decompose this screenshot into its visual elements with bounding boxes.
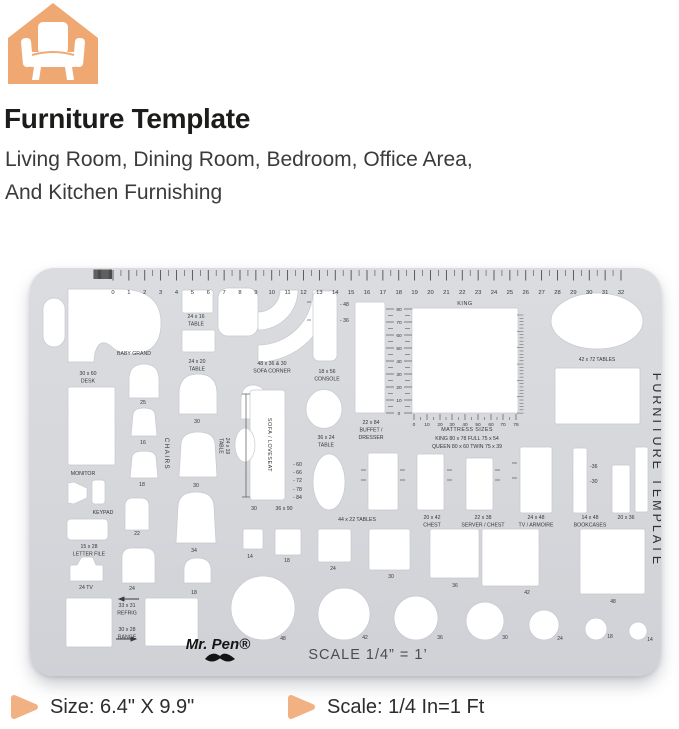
mattress-ruler-number: 10: [424, 422, 430, 428]
top-ruler-number: 24: [491, 290, 498, 296]
label-square-48: 48: [610, 599, 616, 605]
label-mattress-row1: KING 80 x 78 FULL 75 x 54: [435, 436, 499, 442]
cutout-square-30: [369, 529, 410, 570]
label-keypad: KEYPAD: [93, 510, 114, 516]
mattress-ruler-number: 70: [500, 422, 506, 428]
label-rect-20x36: 20 x 36: [617, 515, 634, 521]
cutout-pill: [43, 298, 65, 347]
cutout-chair-25: [129, 364, 159, 398]
side-text: FURNITURE TEMPLATE: [650, 373, 661, 568]
mattress-ruler-number: 0: [413, 422, 416, 428]
subtitle-line1: Living Room, Dining Room, Bedroom, Offic…: [5, 143, 473, 176]
cutout-desk: [68, 387, 115, 465]
cutout-chair-22: [125, 498, 149, 530]
mattress-width-ruler: 01020304050607078: [413, 414, 519, 428]
cutout-square-36: [430, 529, 479, 578]
label-king: KING: [457, 301, 472, 307]
cutout-square-18: [275, 529, 301, 555]
label-square-30: 30: [388, 574, 394, 580]
scale-spec: Scale: 1/4 In=1 Ft: [287, 694, 484, 720]
label-bookcases-14x48: 14 x 48BOOKCASES: [574, 515, 607, 528]
subtitle: Living Room, Dining Room, Bedroom, Offic…: [5, 143, 473, 209]
top-ruler-number: 27: [538, 290, 544, 296]
top-ruler-number: 4: [175, 290, 179, 296]
cutout-chair-16: [131, 408, 157, 436]
label-mark-36: -36: [590, 464, 598, 470]
label-square-42: 42: [524, 590, 530, 596]
top-ruler: 0123456789101112131415161718192021222324…: [94, 270, 624, 297]
cutout-circle-24: [529, 610, 559, 640]
label-chair-30: 30: [193, 483, 199, 489]
top-ruler-number: 12: [300, 290, 306, 296]
product-card: Furniture Template Living Room, Dining R…: [0, 0, 679, 729]
cutout-chair-24: [122, 548, 155, 583]
label-table-24x20: 24 x 20TABLE: [188, 359, 205, 372]
size-label: Size: 6.4" X 9.9": [50, 696, 194, 719]
label-desk-30x60: 30 x 60DESK: [79, 371, 96, 384]
label-chair-30-arch: 30: [194, 419, 200, 425]
label-table-24x19: 24 x 19TABLE: [218, 438, 231, 455]
label-chair-18: 18: [139, 482, 145, 488]
cutout-circle-48: [231, 576, 295, 640]
top-ruler-number: 25: [507, 290, 513, 296]
label-mark-30: -30: [590, 479, 598, 485]
cutout-square-42: [482, 529, 539, 586]
label-square-24: 24: [330, 566, 336, 572]
cutout-tv: [70, 557, 103, 581]
cutout-oval-table-top: [306, 390, 342, 429]
label-circle-48: 48: [280, 636, 286, 642]
label-sofa-mark-84: - 84: [293, 495, 302, 501]
label-circle-24: 24: [557, 636, 563, 642]
height-ruler-number: 70: [396, 320, 402, 326]
top-ruler-number: 1: [127, 290, 130, 296]
label-letter-file: 15 x 28LETTER FILE: [73, 544, 106, 557]
label-sofa-30: 30: [251, 506, 257, 512]
height-ruler-number: 30: [396, 372, 402, 378]
top-ruler-number: 0: [111, 290, 114, 296]
cutout-chair-18: [130, 451, 158, 478]
cutout-console: [313, 291, 337, 361]
height-ruler-number: 60: [396, 333, 402, 339]
label-chair-22: 22: [134, 531, 140, 537]
cutout-sofa-corner-inner: [258, 290, 298, 330]
label-square-14: 14: [247, 554, 253, 560]
label-sofa-corner: 48 x 36 & 30SOFA CORNER: [253, 361, 291, 374]
cutout-chair-34: [176, 492, 216, 543]
cutout-rect-20x36: [612, 465, 630, 513]
top-ruler-number: 28: [554, 290, 560, 296]
label-table-36x24: 36 x 24TABLE: [317, 435, 334, 448]
top-ruler-number: 15: [348, 290, 354, 296]
top-ruler-number: 29: [570, 290, 576, 296]
top-ruler-number: 31: [602, 290, 608, 296]
label-sofa-36x90: 36 x 90: [275, 506, 292, 512]
top-ruler-number: 11: [285, 290, 291, 296]
label-mattress-row2: QUEEN 80 x 60 TWIN 75 x 39: [432, 444, 502, 450]
height-ruler: 80706050403020100: [386, 307, 412, 417]
height-ruler-number: 50: [396, 346, 402, 352]
cutout-buffet: [355, 302, 385, 413]
label-chair-24: 24: [129, 586, 135, 592]
cutout-square-48: [580, 529, 645, 594]
label-circle-36: 36: [437, 635, 443, 641]
label-chest-20x42: 20 x 42CHEST: [423, 515, 441, 528]
mustache-icon: [205, 654, 235, 662]
cutout-circle-18: [585, 618, 607, 640]
label-chair-34: 34: [191, 548, 197, 554]
label-buffet-22x84: 22 x 84BUFFET /DRESSER: [358, 420, 383, 441]
label-sofa-mark-72: - 72: [293, 478, 302, 484]
cutout-chair-30: [179, 432, 217, 477]
height-ruler-number: 40: [396, 359, 402, 365]
cutout-edge-rect: [635, 447, 648, 512]
top-ruler-number: 8: [238, 290, 241, 296]
brand-text: Mr. Pen®: [186, 636, 251, 653]
top-ruler-number: 7: [223, 290, 226, 296]
label-baby-grand: BABY GRAND: [117, 351, 151, 357]
label-console-18x56: 18 x 56CONSOLE: [314, 369, 340, 382]
label-square-18: 18: [284, 558, 290, 564]
height-ruler-number: 20: [396, 385, 402, 391]
page-title: Furniture Template: [4, 103, 250, 135]
label-sofa-mark-78: - 78: [293, 487, 302, 493]
furniture-template-photo: 0123456789101112131415161718192021222324…: [30, 268, 661, 676]
top-ruler-number: 32: [618, 290, 624, 296]
template-graphic: 0123456789101112131415161718192021222324…: [30, 268, 661, 676]
cutout-oval-small: [235, 428, 255, 462]
cutout-square-14: [243, 529, 263, 549]
top-ruler-number: 10: [269, 290, 275, 296]
label-tables-42x72: 42 x 72 TABLES: [579, 357, 616, 363]
cutout-server-22x38: [466, 458, 493, 510]
label-console-mark-36: - 36: [340, 318, 349, 324]
cutout-circle-30: [466, 602, 504, 640]
label-chair-18-small: 18: [191, 590, 197, 596]
top-ruler-number: 26: [523, 290, 529, 296]
top-ruler-number: 2: [143, 290, 146, 296]
height-ruler-number: 0: [398, 411, 401, 417]
cutout-circle-36: [394, 596, 438, 640]
cutout-circle-14: [629, 622, 647, 640]
mattress-ruler-number: 78: [513, 422, 519, 428]
size-spec: Size: 6.4" X 9.9": [10, 694, 194, 720]
squares-row: 14182430364248: [243, 529, 645, 605]
top-ruler-number: 19: [411, 290, 417, 296]
scale-text: SCALE 1/4” = 1’: [308, 647, 427, 663]
label-square-36: 36: [452, 583, 458, 589]
cutout-refrig: [66, 598, 112, 647]
cutout-chair-18-small: [184, 558, 211, 583]
cutout-chest-20x42: [417, 454, 444, 510]
label-server-22x38: 22 x 38SERVER / CHEST: [461, 515, 505, 528]
scale-label: Scale: 1/4 In=1 Ft: [327, 696, 484, 719]
subtitle-line2: And Kitchen Furnishing: [5, 176, 473, 209]
top-ruler-number: 22: [459, 290, 465, 296]
cutout-keyboard: [92, 480, 105, 504]
label-circle-42: 42: [362, 635, 368, 641]
label-chairs: CHAIRS: [163, 438, 170, 470]
top-ruler-number: 3: [159, 290, 162, 296]
label-sofa-loveseat: SOFA / LOVESEAT: [266, 418, 272, 472]
label-console-mark-48: - 48: [340, 302, 349, 308]
height-ruler-number: 10: [396, 398, 402, 404]
top-ruler-number: 6: [207, 290, 210, 296]
height-ruler-number: 80: [396, 307, 402, 313]
cutout-table-24x20: [182, 330, 215, 352]
cutout-chair-30-arch: [179, 374, 217, 414]
cutout-tv-armoire-24x48: [520, 447, 552, 513]
cutout-monitor: [68, 482, 87, 504]
top-ruler-number: 20: [427, 290, 433, 296]
cutout-keypad: [67, 519, 108, 540]
top-ruler-number: 30: [586, 290, 592, 296]
label-sofa-mark-66: - 66: [293, 470, 302, 476]
top-ruler-number: 18: [396, 290, 402, 296]
label-tv-armoire-24x48: 24 x 48TV / ARMOIRE: [519, 515, 554, 528]
label-chair-16: 16: [140, 440, 146, 446]
label-refrig: 33 x 31REFRIG: [117, 603, 137, 616]
label-chair-25: 25: [140, 400, 146, 406]
arrow-right-bullet-icon: [287, 694, 317, 720]
cutout-oval-table-bottom: [313, 454, 345, 510]
label-tables-44x22: 44 x 22 TABLES: [338, 517, 376, 523]
cutout-square-24: [318, 529, 351, 562]
top-ruler-number: 17: [380, 290, 386, 296]
top-ruler-number: 13: [316, 290, 322, 296]
top-ruler-number: 9: [254, 290, 257, 296]
arrow-right-bullet-icon: [10, 694, 40, 720]
label-circle-14: 14: [647, 637, 653, 643]
top-ruler-number: 5: [191, 290, 194, 296]
label-circle-18: 18: [607, 634, 613, 640]
cutout-rect-table-42x72: [555, 368, 640, 424]
cutout-king-mattress: [412, 308, 518, 413]
top-ruler-number: 21: [443, 290, 449, 296]
label-tv-24: 24 TV: [79, 585, 93, 591]
top-ruler-number: 23: [475, 290, 481, 296]
cutout-oval-table-42x72: [551, 293, 643, 349]
top-ruler-number: 16: [364, 290, 370, 296]
label-sofa-mark-60: - 60: [293, 462, 302, 468]
label-table-24x16: 24 x 16TABLE: [187, 314, 204, 327]
label-mattress-title: MATTRESS SIZES: [441, 427, 493, 433]
house-armchair-icon: [8, 3, 98, 84]
cutout-circle-42: [318, 588, 370, 640]
label-range: 30 x 28RANGE: [118, 627, 137, 640]
top-ruler-number: 14: [332, 290, 339, 296]
cutout-bookcases-14x48: [573, 448, 587, 513]
label-monitor: MONITOR: [71, 471, 96, 477]
cutout-tables-44x22: [368, 453, 398, 510]
label-circle-30: 30: [502, 635, 508, 641]
